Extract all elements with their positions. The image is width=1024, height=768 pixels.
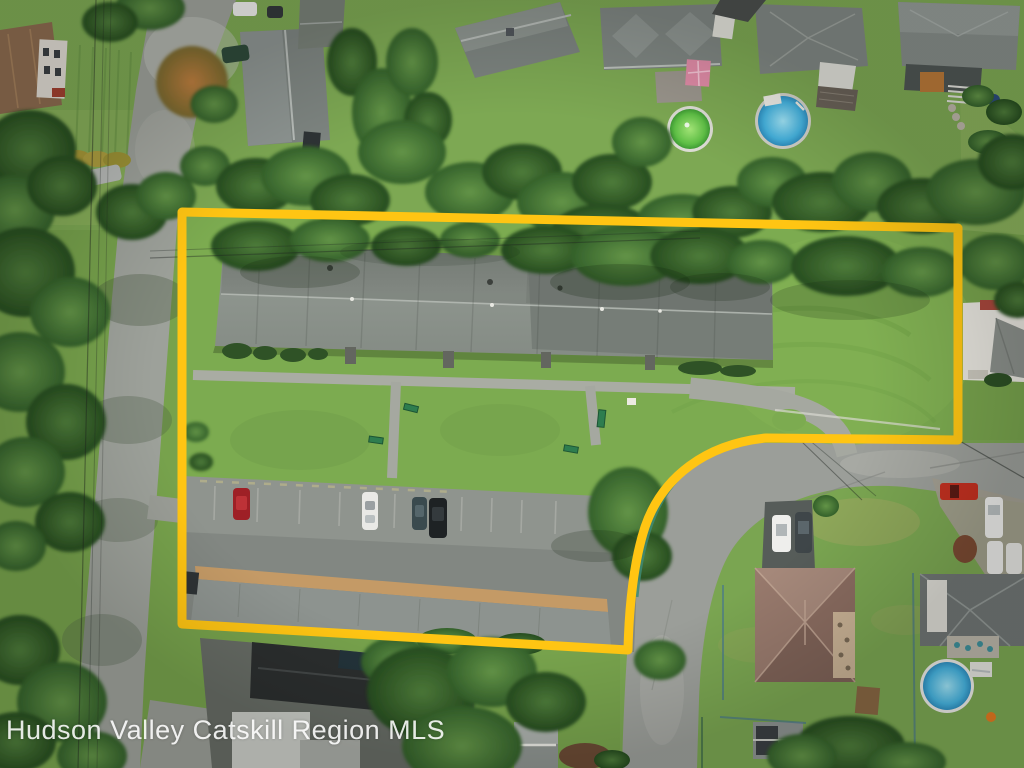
aerial-photo-canvas [0, 0, 1024, 768]
aerial-photo: Hudson Valley Catskill Region MLS [0, 0, 1024, 768]
mls-watermark: Hudson Valley Catskill Region MLS [6, 716, 445, 746]
vignette [0, 0, 1024, 768]
